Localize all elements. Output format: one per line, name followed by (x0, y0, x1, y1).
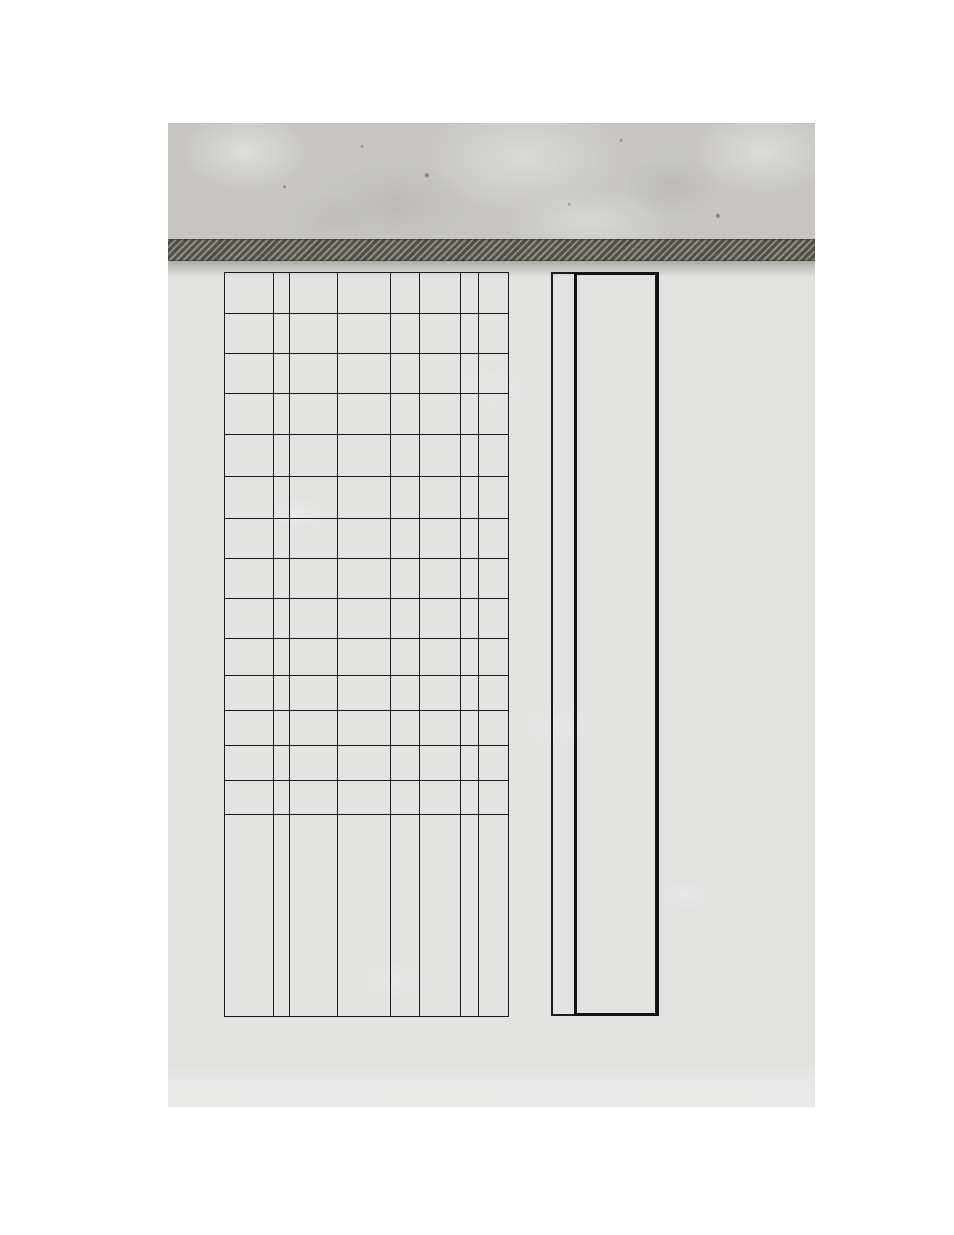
table-cell (274, 394, 290, 435)
table-row (225, 599, 509, 639)
table-cell (461, 781, 479, 815)
table-cell (479, 559, 509, 599)
table-cell (461, 394, 479, 435)
table-cell (479, 676, 509, 711)
table-row (225, 354, 509, 394)
concrete-texture-header (168, 123, 815, 240)
table-cell (479, 519, 509, 559)
table-cell (225, 354, 274, 394)
table-cell (338, 519, 391, 559)
table-cell (479, 354, 509, 394)
table-cell (420, 599, 461, 639)
table-cell (274, 815, 290, 1017)
screenshot-canvas (0, 0, 954, 1235)
table-cell (274, 781, 290, 815)
table-cell (290, 273, 338, 314)
table-cell (274, 639, 290, 676)
table-cell (225, 477, 274, 519)
table-cell (391, 781, 420, 815)
table-cell (461, 676, 479, 711)
table-cell (225, 394, 274, 435)
table-cell (420, 711, 461, 746)
table-cell (391, 599, 420, 639)
table-cell (479, 477, 509, 519)
table-cell (461, 711, 479, 746)
table-cell (338, 746, 391, 781)
table-cell (290, 711, 338, 746)
ledger-body (225, 273, 509, 1017)
table-cell (338, 781, 391, 815)
table-cell (274, 559, 290, 599)
table-cell (225, 519, 274, 559)
table-cell (225, 815, 274, 1017)
side-box-heavy-frame (574, 272, 659, 1016)
table-cell (479, 711, 509, 746)
table-cell (274, 314, 290, 354)
table-cell (225, 781, 274, 815)
table-cell (290, 477, 338, 519)
table-cell (338, 639, 391, 676)
table-cell (461, 435, 479, 477)
table-cell (290, 435, 338, 477)
table-cell (420, 746, 461, 781)
table-cell (479, 815, 509, 1017)
table-cell (225, 746, 274, 781)
table-cell (391, 559, 420, 599)
table-cell (391, 314, 420, 354)
table-cell (391, 639, 420, 676)
table-cell (290, 676, 338, 711)
table-cell (391, 435, 420, 477)
table-cell (290, 815, 338, 1017)
table-cell (420, 559, 461, 599)
table-cell (461, 519, 479, 559)
table-cell (461, 477, 479, 519)
table-cell (290, 354, 338, 394)
table-cell (290, 746, 338, 781)
table-cell (420, 676, 461, 711)
table-row (225, 314, 509, 354)
table-cell (479, 314, 509, 354)
table-cell (338, 354, 391, 394)
table-cell (420, 477, 461, 519)
side-box-narrow-column (553, 274, 574, 1014)
table-row (225, 559, 509, 599)
table-row (225, 477, 509, 519)
table-cell (225, 435, 274, 477)
table-cell (479, 639, 509, 676)
table-cell (290, 781, 338, 815)
table-cell (479, 746, 509, 781)
table-cell (338, 273, 391, 314)
table-cell (338, 559, 391, 599)
table-cell (461, 639, 479, 676)
table-cell (274, 354, 290, 394)
table-cell (225, 314, 274, 354)
table-cell (461, 815, 479, 1017)
table-cell (420, 639, 461, 676)
table-cell (461, 746, 479, 781)
table-cell (391, 519, 420, 559)
table-cell (391, 746, 420, 781)
table-row (225, 781, 509, 815)
table-cell (391, 711, 420, 746)
table-cell (338, 394, 391, 435)
table-cell (225, 639, 274, 676)
table-row (225, 815, 509, 1017)
table-cell (290, 599, 338, 639)
table-cell (461, 354, 479, 394)
table-cell (420, 435, 461, 477)
table-cell (290, 519, 338, 559)
table-cell (290, 314, 338, 354)
table-cell (274, 676, 290, 711)
document-page (168, 123, 815, 1107)
table-cell (338, 435, 391, 477)
table-row (225, 711, 509, 746)
table-row (225, 676, 509, 711)
table-cell (290, 559, 338, 599)
table-cell (420, 354, 461, 394)
table-cell (274, 477, 290, 519)
table-cell (391, 354, 420, 394)
table-cell (225, 559, 274, 599)
table-cell (274, 519, 290, 559)
table-cell (461, 559, 479, 599)
table-cell (391, 676, 420, 711)
table-cell (338, 599, 391, 639)
table-row (225, 273, 509, 314)
table-cell (274, 273, 290, 314)
woven-fabric-band (168, 239, 815, 261)
table-cell (290, 639, 338, 676)
table-cell (479, 394, 509, 435)
table-cell (338, 711, 391, 746)
side-box (551, 272, 657, 1016)
table-cell (391, 394, 420, 435)
table-row (225, 639, 509, 676)
table-cell (420, 781, 461, 815)
table-cell (225, 711, 274, 746)
table-cell (225, 676, 274, 711)
table-cell (461, 314, 479, 354)
table-row (225, 746, 509, 781)
table-cell (274, 746, 290, 781)
table-cell (420, 815, 461, 1017)
table-cell (225, 273, 274, 314)
table-cell (290, 394, 338, 435)
table-row (225, 435, 509, 477)
table-cell (274, 435, 290, 477)
table-cell (338, 676, 391, 711)
ledger-table (224, 272, 509, 1017)
table-cell (461, 599, 479, 639)
table-cell (479, 781, 509, 815)
table-cell (338, 477, 391, 519)
table-cell (391, 273, 420, 314)
table-cell (338, 314, 391, 354)
table-cell (274, 599, 290, 639)
table-row (225, 394, 509, 435)
table-cell (420, 314, 461, 354)
table-cell (420, 273, 461, 314)
table-cell (225, 599, 274, 639)
table-row (225, 519, 509, 559)
table-cell (338, 815, 391, 1017)
table-cell (274, 711, 290, 746)
table-cell (479, 273, 509, 314)
table-cell (479, 435, 509, 477)
table-cell (461, 273, 479, 314)
table-cell (420, 394, 461, 435)
table-cell (391, 477, 420, 519)
table-cell (420, 519, 461, 559)
table-cell (391, 815, 420, 1017)
table-cell (479, 599, 509, 639)
